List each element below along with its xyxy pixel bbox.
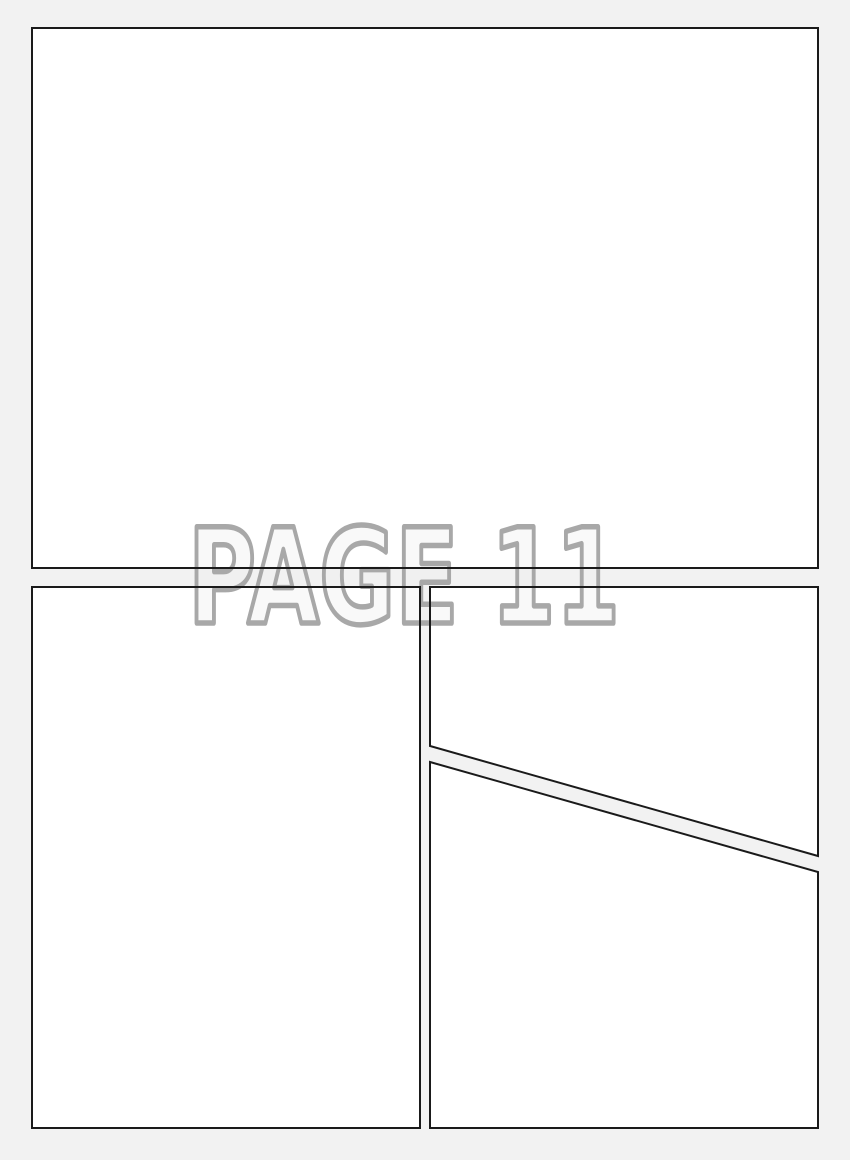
panel-borders-layer [0,0,850,1160]
panel-bottom-left-border [32,587,420,1128]
panel-right-upper-border [430,587,818,856]
comic-page-template: PAGE 11 [0,0,850,1160]
panel-top-border [32,28,818,568]
panel-right-lower-border [430,762,818,1128]
